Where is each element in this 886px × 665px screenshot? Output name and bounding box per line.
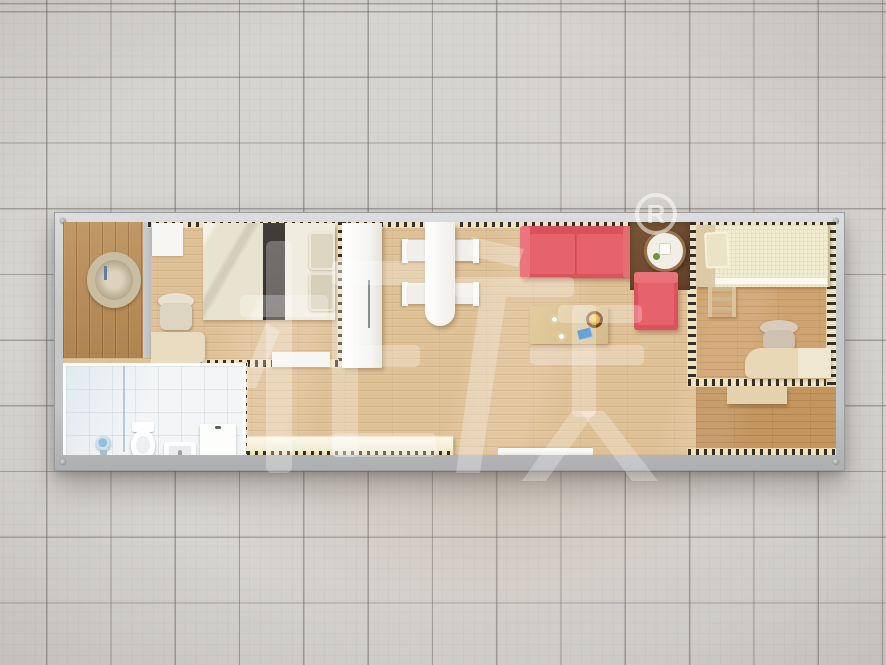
bedroom2-desk [745,348,831,378]
dining-chair [455,283,473,304]
napkin-holder [577,328,592,340]
cup [550,315,559,324]
bench-window-hatch [247,451,453,455]
bed2-sheet-edge [715,278,827,284]
plant-pot [653,253,660,260]
coffee-table [530,306,608,344]
chair-seat [160,303,192,330]
wreath-center [104,266,107,280]
wreath-decor [87,252,141,308]
bedroom1-desk [151,332,205,363]
wall-hatch-bedroom2-bottom [688,379,836,386]
dining-table [425,222,455,326]
armchair-backrest [634,272,678,283]
bedroom1-chair [156,293,196,332]
bed-pillow [309,232,335,270]
shower-glass-divider [123,366,125,452]
dining-chair-backrest [473,239,479,263]
fruit [589,314,600,325]
wash-basin [164,442,196,455]
window-bench [247,437,453,455]
scene: R [0,0,886,665]
dining-chair [408,240,426,261]
bed2-pillow [704,231,730,268]
bed2-ladder [708,287,736,317]
bed-pillow [309,273,335,311]
bedroom2-bed [697,225,830,287]
bedroom1-bed [203,223,335,320]
shower-head [96,436,111,451]
door-threshold [498,447,593,455]
fruit-bowl [586,311,603,328]
sofa [520,226,633,278]
plan-interior [63,222,836,455]
wall-entry-bedroom1 [143,222,151,358]
shower-pipe [100,450,107,455]
sofa-cushion [577,234,623,274]
basin-faucet [178,450,182,455]
desk-return [798,348,831,378]
dining-chair-backrest [473,282,479,306]
wardrobe-handle [368,280,370,328]
bed-runner [263,223,285,320]
bathroom-cabinet [200,424,236,455]
dining-chair [408,283,426,304]
armchair-cushion [638,283,674,325]
bedroom1-sliding-door [272,352,330,367]
wardrobe [342,223,382,368]
dining-chair [455,240,473,261]
toilet [131,430,155,455]
cup [557,332,566,341]
sofa-cushion [530,234,576,274]
wall-hatch-corridor-bottom [688,449,836,455]
cabinet-handle [215,426,221,429]
round-side-table [644,230,686,272]
cup [659,243,671,255]
sofa-armrest [520,226,530,278]
frame-screw-icon [60,459,66,465]
console-table [727,386,787,404]
container-floor-plan [55,213,844,470]
bathroom-floor [63,363,246,455]
bedroom1-wall-cabinet [152,223,183,256]
frame-screw-icon [833,459,839,465]
toilet-bowl [136,436,150,454]
armchair [634,272,678,330]
